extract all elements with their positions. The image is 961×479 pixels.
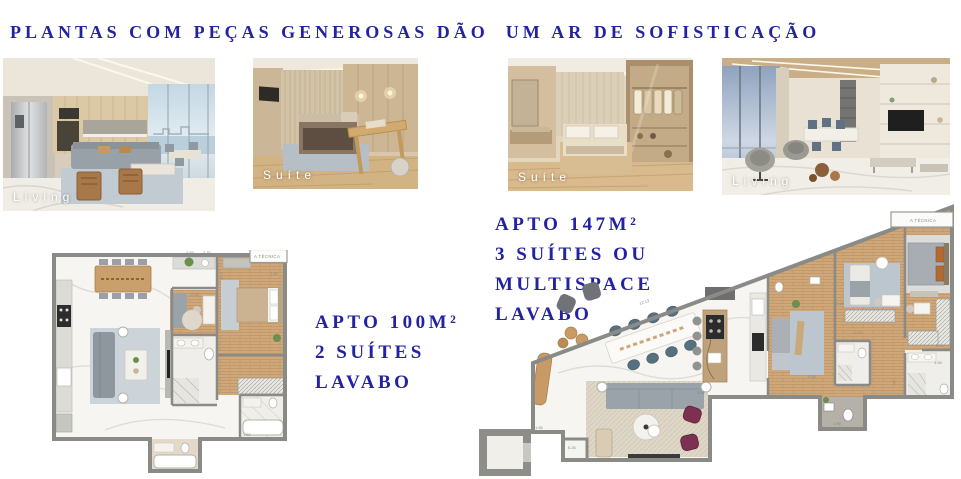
- tech-area-label: A TÉCNICA: [254, 254, 280, 259]
- dim-label: 2.55: [808, 374, 817, 379]
- apto-100-specs: APTO 100M² 2 SUÍTES LAVABO: [315, 308, 459, 398]
- photo-label: Suíte: [518, 170, 571, 184]
- dim-label: 4.47: [868, 353, 873, 362]
- spec-line: APTO 100M²: [315, 308, 459, 338]
- floorplan-apto-100: A TÉCNICA 4.84 2.70 2.56 3.06 2.50 1.50: [45, 250, 290, 475]
- floorplan-apto-147-drawing: A TÉCNICA 12.13 3.26 2.55 2.68 1.83 4.47…: [478, 203, 961, 479]
- tech-area-box: A TÉCNICA: [891, 212, 953, 227]
- floorplan-apto-147: A TÉCNICA 12.13 3.26 2.55 2.68 1.83 4.47…: [478, 203, 961, 479]
- living-kitchen-render: [3, 58, 215, 211]
- photo-label: Living: [732, 174, 793, 188]
- tech-area-box: A TÉCNICA: [250, 250, 287, 263]
- brochure-page: PLANTAS COM PEÇAS GENEROSAS DÃO UM AR DE…: [0, 0, 961, 479]
- photo-living-kitchen: Living: [3, 58, 215, 211]
- dim-label: 3.00: [936, 343, 945, 348]
- dim-label: 5.26: [568, 445, 577, 450]
- dim-label: 3.26: [697, 390, 706, 395]
- dim-label: 1.94: [934, 360, 943, 365]
- photo-label: Living: [13, 190, 74, 204]
- dim-label: 3.06: [219, 272, 224, 281]
- dim-label: 2.56: [191, 292, 200, 297]
- spec-line: 2 SUÍTES: [315, 338, 459, 368]
- floorplan-apto-100-drawing: A TÉCNICA 4.84 2.70 2.56 3.06 2.50 1.50: [45, 250, 290, 475]
- photo-suite-closet: Suíte: [508, 58, 693, 191]
- dim-label: 12.13: [639, 298, 651, 306]
- dim-label: 1.95: [833, 421, 842, 426]
- photo-label: Suíte: [263, 168, 316, 182]
- photo-suite-bedroom: Suíte: [253, 58, 418, 189]
- dim-label: 7.00: [892, 377, 897, 386]
- dim-label: 2.50: [270, 271, 279, 276]
- tech-area-label: A TÉCNICA: [910, 218, 936, 223]
- dim-label: 2.70: [203, 250, 212, 255]
- dim-label: 1.50: [243, 432, 252, 437]
- dim-label: 4.84: [186, 250, 195, 255]
- photo-living-large: Living: [722, 58, 950, 195]
- page-title: PLANTAS COM PEÇAS GENEROSAS DÃO UM AR DE…: [10, 22, 950, 43]
- elevator-shaft: [479, 429, 531, 476]
- dim-label: 1.83: [854, 330, 863, 335]
- spec-line: LAVABO: [315, 368, 459, 398]
- dim-label: 1.65: [535, 425, 544, 430]
- dim-label: 2.68: [836, 301, 845, 306]
